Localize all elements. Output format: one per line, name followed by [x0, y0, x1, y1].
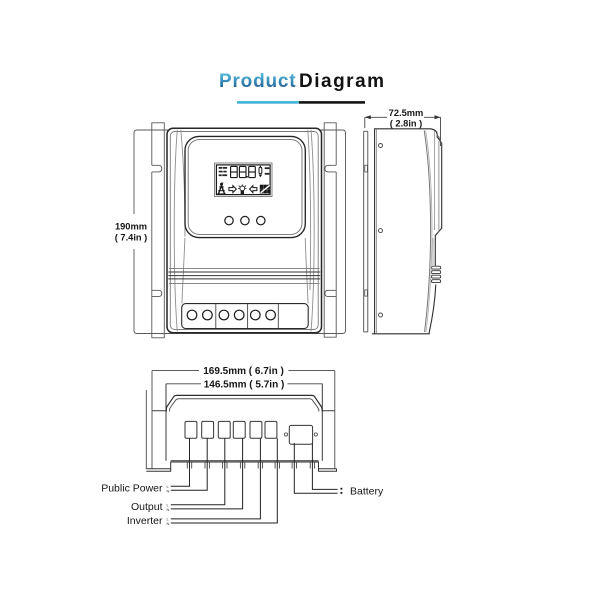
svg-text:Output: Output: [131, 501, 163, 513]
svg-text:146.5mm ( 5.7in ): 146.5mm ( 5.7in ): [204, 379, 285, 390]
svg-text:169.5mm ( 6.7in ): 169.5mm ( 6.7in ): [203, 366, 284, 377]
svg-text:190mm: 190mm: [115, 222, 147, 232]
svg-text:Battery: Battery: [350, 486, 384, 498]
svg-text:Product: Product: [219, 71, 296, 92]
svg-text:Inverter: Inverter: [127, 515, 163, 527]
svg-text:( 2.8in ): ( 2.8in ): [390, 118, 423, 128]
svg-text:72.5mm: 72.5mm: [389, 108, 424, 118]
svg-text:N: N: [167, 521, 170, 526]
svg-text:N: N: [167, 489, 170, 494]
svg-text:Public Power: Public Power: [101, 483, 163, 495]
svg-text:Diagram: Diagram: [299, 71, 386, 92]
svg-text:( 7.4in ): ( 7.4in ): [115, 233, 148, 243]
svg-text:N: N: [167, 507, 170, 512]
